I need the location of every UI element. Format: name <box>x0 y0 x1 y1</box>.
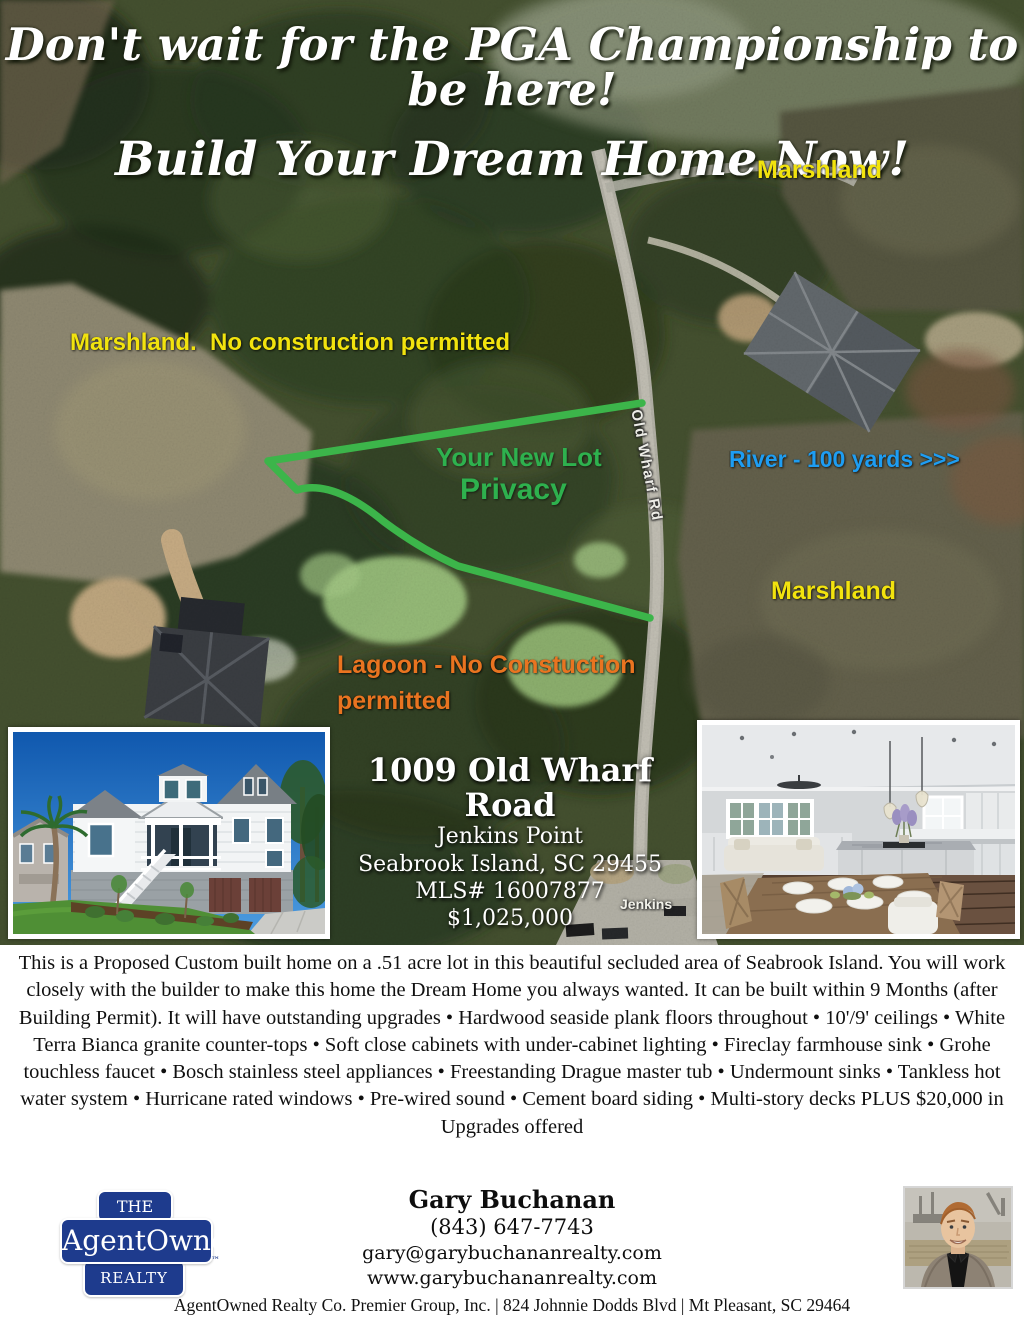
label-privacy: Privacy <box>460 474 567 506</box>
label-marshland-left: Marshland. No construction permitted <box>70 330 510 355</box>
logo-realty-box: REALTY CO. <box>83 1259 185 1297</box>
label-marshland-right: Marshland <box>771 578 896 604</box>
agent-website: www.garybuchananrealty.com <box>262 1266 762 1291</box>
logo-trademark: ™ <box>211 1256 220 1266</box>
label-river: River - 100 yards >>> <box>729 447 960 471</box>
agent-email: gary@garybuchananrealty.com <box>262 1241 762 1266</box>
label-lagoon-line1: Lagoon - No Constuction <box>337 652 636 678</box>
property-neighborhood: Jenkins Point <box>332 823 688 850</box>
exterior-photo-illustration <box>13 732 325 934</box>
exterior-photo <box>8 727 330 939</box>
property-city: Seabrook Island, SC 29455 <box>332 851 688 878</box>
property-price: $1,025,000 <box>332 905 688 932</box>
footer-address: AgentOwned Realty Co. Premier Group, Inc… <box>0 1295 1024 1316</box>
interior-photo <box>697 720 1020 939</box>
agent-photo <box>903 1186 1013 1289</box>
property-info: 1009 Old Wharf Road Jenkins Point Seabro… <box>332 753 688 932</box>
property-description: This is a Proposed Custom built home on … <box>8 950 1016 1141</box>
property-address: 1009 Old Wharf Road <box>332 753 688 823</box>
label-lagoon-line2: permitted <box>337 688 451 714</box>
agent-headshot-illustration <box>905 1188 1011 1287</box>
agent-phone: (843) 647-7743 <box>262 1214 762 1241</box>
agent-name: Gary Buchanan <box>262 1186 762 1214</box>
interior-photo-illustration <box>702 725 1015 934</box>
label-marshland-top: Marshland <box>757 157 882 183</box>
real-estate-flyer: Don't wait for the PGA Championship to b… <box>0 0 1024 1325</box>
logo-main-box: AgentOwned <box>60 1218 213 1264</box>
property-mls: MLS# 16007877 <box>332 878 688 905</box>
agent-contact: Gary Buchanan (843) 647-7743 gary@garybu… <box>262 1186 762 1290</box>
label-your-new-lot: Your New Lot <box>436 444 602 471</box>
